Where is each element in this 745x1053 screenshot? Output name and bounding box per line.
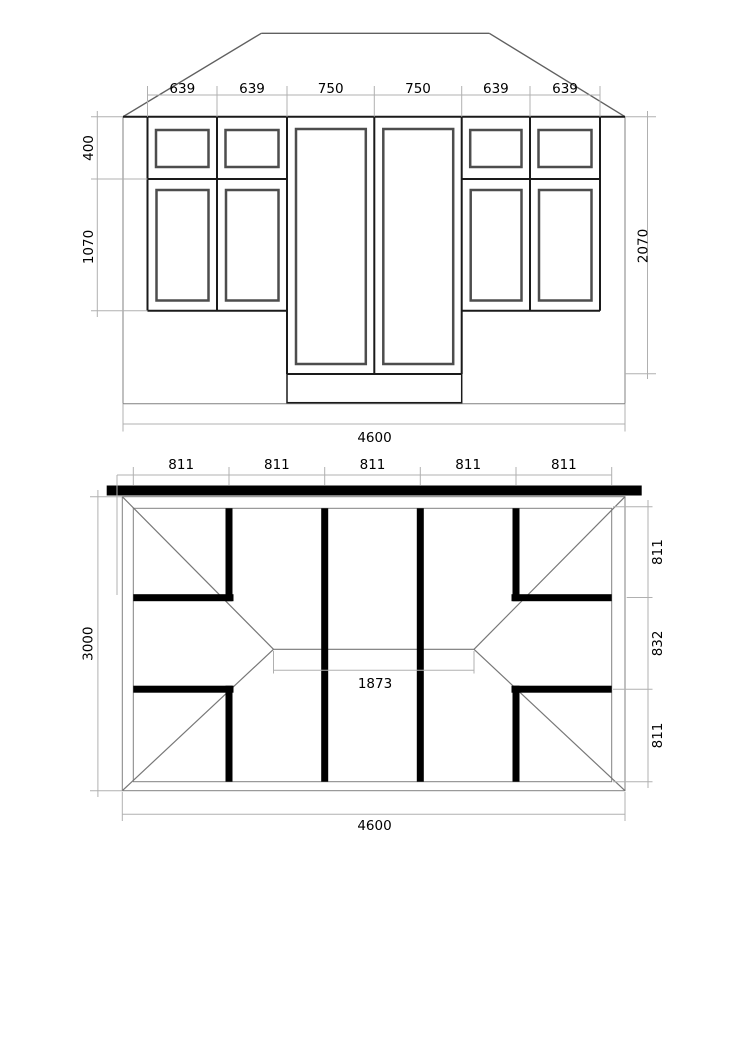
- dim-label-plan-bay5: 811: [551, 457, 577, 473]
- elevation-left-dimension: 400 1070: [81, 111, 148, 317]
- dim-label-2070: 2070: [636, 229, 652, 263]
- plan-inner-rect: [133, 508, 611, 781]
- dim-label-bay4: 750: [405, 81, 431, 97]
- elevation-bottom-dimension: 4600: [123, 404, 625, 446]
- dim-label-plan-bay3: 811: [360, 457, 386, 473]
- elevation-right-dimension: 2070: [625, 111, 656, 379]
- plan-rafter-bars: [133, 508, 611, 781]
- dim-label-3000: 3000: [81, 627, 97, 661]
- dim-label-right-811a: 811: [650, 539, 666, 565]
- dim-label-plan-bay4: 811: [455, 457, 481, 473]
- technical-drawing-canvas: 639 639 750 750 639 639 400 1070: [0, 0, 745, 1053]
- dim-label-bay5: 639: [483, 81, 509, 97]
- plan-left-dimension: 3000: [81, 490, 123, 797]
- roof-plan-view: 811 811 811 811 811 3000 811: [81, 457, 667, 834]
- dim-label-400: 400: [81, 135, 97, 161]
- elevation-view: 639 639 750 750 639 639 400 1070: [81, 33, 656, 446]
- dim-label-bay1: 639: [169, 81, 195, 97]
- elevation-frames: [148, 117, 601, 374]
- drawing-page: 639 639 750 750 639 639 400 1070: [0, 0, 745, 1053]
- plan-right-dimension: 811 832 811: [613, 500, 666, 788]
- dim-label-plan-bay1: 811: [168, 457, 194, 473]
- plan-top-dimension: 811 811 811 811 811: [117, 457, 612, 595]
- dim-label-1070: 1070: [81, 230, 97, 264]
- dim-label-plan-4600: 4600: [357, 818, 391, 834]
- plan-bottom-dimension: 4600: [122, 792, 625, 834]
- dim-label-bay3: 750: [318, 81, 344, 97]
- dim-label-elev-4600: 4600: [357, 430, 391, 446]
- dim-label-right-811b: 811: [650, 723, 666, 749]
- dim-label-plan-bay2: 811: [264, 457, 290, 473]
- elevation-door-step: [287, 374, 462, 403]
- elevation-top-dimension: 639 639 750 750 639 639: [148, 81, 601, 117]
- dim-label-bay2: 639: [239, 81, 265, 97]
- plan-ridge-dimension: 1873: [274, 651, 475, 692]
- dim-label-right-832: 832: [650, 631, 666, 657]
- plan-hips-ridge: [122, 497, 625, 791]
- dim-label-bay6: 639: [552, 81, 578, 97]
- dim-label-1873: 1873: [358, 676, 392, 692]
- plan-top-beam: [107, 486, 642, 496]
- plan-outer-rect: [122, 497, 625, 791]
